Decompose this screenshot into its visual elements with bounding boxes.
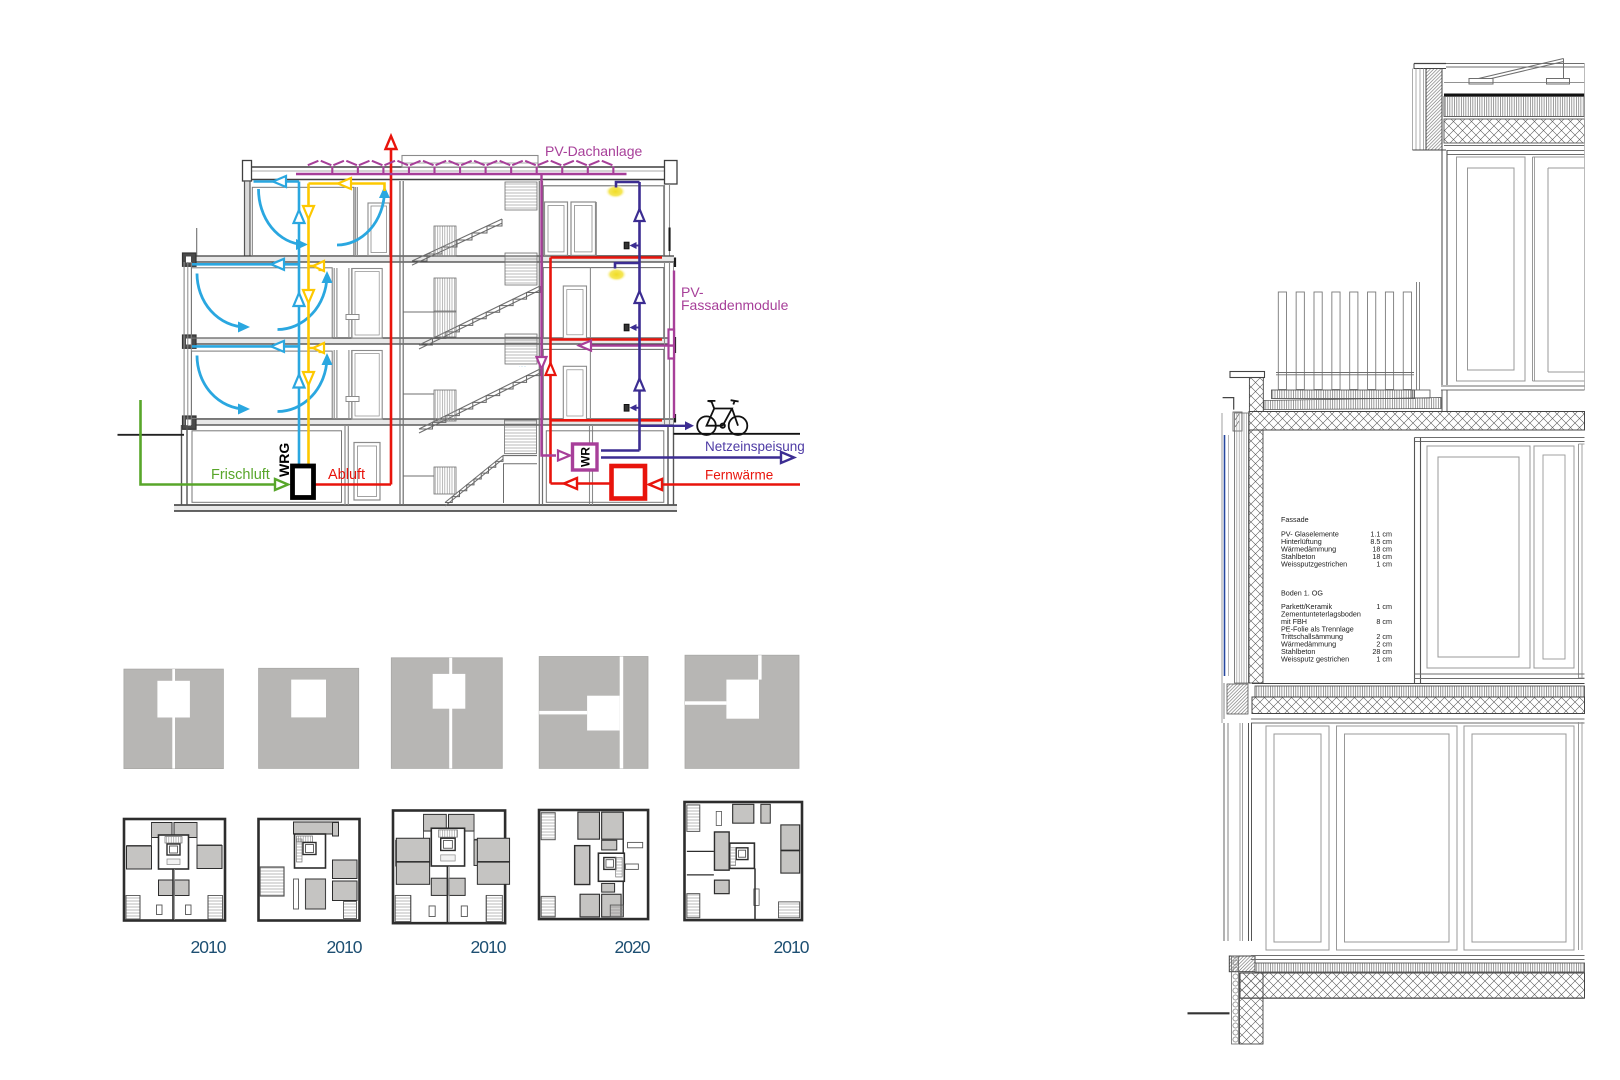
svg-text:Weissputzgestrichen: Weissputzgestrichen xyxy=(1281,560,1347,569)
svg-text:Weissputz gestrichen: Weissputz gestrichen xyxy=(1281,655,1349,664)
svg-text:2010: 2010 xyxy=(327,937,363,957)
svg-text:PV-Dachanlage: PV-Dachanlage xyxy=(545,143,643,159)
svg-text:1 cm: 1 cm xyxy=(1376,560,1392,569)
svg-text:Abluft: Abluft xyxy=(328,467,365,483)
svg-text:WRG: WRG xyxy=(276,443,292,477)
svg-text:WR: WR xyxy=(579,447,593,467)
svg-text:1 cm: 1 cm xyxy=(1376,655,1392,664)
svg-text:2020: 2020 xyxy=(615,937,651,957)
svg-text:Fernwärme: Fernwärme xyxy=(705,468,773,483)
svg-text:Netzeinspeisung: Netzeinspeisung xyxy=(705,439,805,454)
svg-text:Frischluft: Frischluft xyxy=(211,467,270,483)
svg-text:2010: 2010 xyxy=(191,937,227,957)
svg-text:1 cm: 1 cm xyxy=(1376,602,1392,611)
svg-text:Boden 1. OG: Boden 1. OG xyxy=(1281,589,1323,598)
svg-text:2010: 2010 xyxy=(774,937,810,957)
svg-text:·····: ····· xyxy=(519,364,527,369)
svg-text:2010: 2010 xyxy=(471,937,507,957)
svg-text:Fassade: Fassade xyxy=(1281,515,1309,524)
svg-text:Fassadenmodule: Fassadenmodule xyxy=(681,297,789,313)
svg-text:8 cm: 8 cm xyxy=(1376,617,1392,626)
